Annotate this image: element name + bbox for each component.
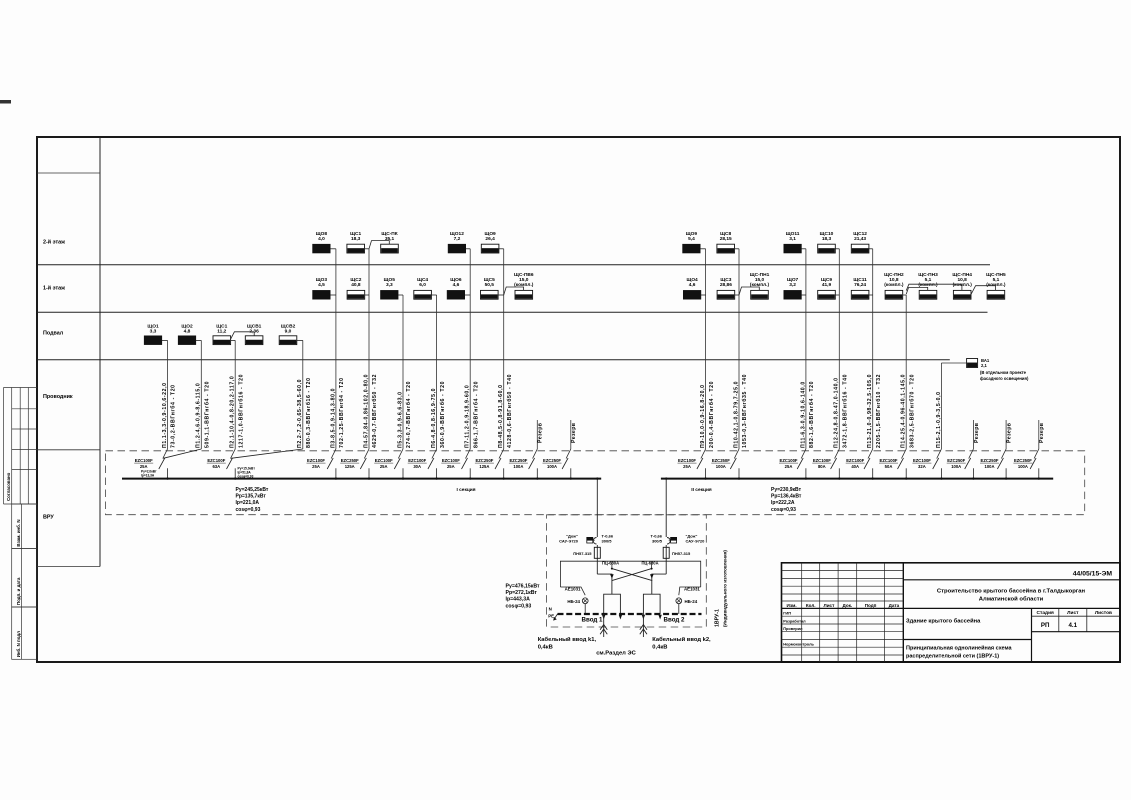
- svg-text:EZC100F: EZC100F: [442, 458, 460, 463]
- svg-text:N: N: [549, 607, 552, 612]
- svg-text:0,4кВ: 0,4кВ: [652, 644, 667, 650]
- svg-text:100А: 100А: [513, 464, 523, 469]
- svg-text:Iр=221,0А: Iр=221,0А: [236, 500, 260, 506]
- svg-text:0,4кВ: 0,4кВ: [538, 644, 553, 650]
- svg-text:EZC250F: EZC250F: [475, 458, 493, 463]
- svg-text:(Индивидуального изготовления): (Индивидуального изготовления): [723, 550, 728, 627]
- svg-text:4,0: 4,0: [318, 236, 325, 242]
- svg-text:Кол.: Кол.: [806, 603, 816, 608]
- svg-text:Резерв: Резерв: [1039, 423, 1045, 443]
- svg-text:ПЦ-630А: ПЦ-630А: [602, 561, 619, 566]
- svg-text:Ввод 1: Ввод 1: [582, 617, 604, 624]
- svg-text:П8-48,5-0,8-91,8-60,0: П8-48,5-0,8-91,8-60,0: [498, 384, 504, 448]
- svg-text:2,1: 2,1: [981, 363, 987, 368]
- svg-text:АЕ1031: АЕ1031: [684, 587, 700, 592]
- svg-text:cosφ=0,93: cosφ=0,93: [238, 475, 254, 479]
- svg-text:Резерв: Резерв: [974, 423, 980, 443]
- svg-text:САУ-Э720: САУ-Э720: [559, 539, 579, 544]
- svg-text:Кабельный ввод k1,: Кабельный ввод k1,: [538, 636, 597, 643]
- svg-text:Изм.: Изм.: [787, 603, 797, 608]
- svg-text:П15-2,1-0,9-3,5-0,0: П15-2,1-0,9-3,5-0,0: [936, 391, 942, 448]
- svg-text:100А: 100А: [547, 464, 557, 469]
- svg-text:73-0,2-ВВГнгб4 - Т20: 73-0,2-ВВГнгб4 - Т20: [170, 384, 177, 448]
- svg-text:25А: 25А: [380, 464, 388, 469]
- svg-text:Рр=272,1кВт: Рр=272,1кВт: [506, 590, 538, 596]
- svg-text:4629-0,7-ВВГнгб50 - Т32: 4629-0,7-ВВГнгб50 - Т32: [371, 374, 378, 448]
- svg-text:Iр=222,2А: Iр=222,2А: [771, 500, 795, 506]
- svg-text:80А: 80А: [818, 464, 826, 469]
- svg-text:300/5: 300/5: [652, 539, 663, 544]
- svg-text:3683-2,5-ВВГнгб70 - Т20: 3683-2,5-ВВГнгб70 - Т20: [908, 374, 915, 448]
- svg-text:П14-25,4-0,96-40,1-145,0: П14-25,4-0,96-40,1-145,0: [901, 374, 907, 448]
- svg-text:4,6: 4,6: [689, 282, 696, 288]
- svg-text:АЕ1031: АЕ1031: [565, 587, 581, 592]
- svg-text:EZC100F: EZC100F: [135, 458, 153, 463]
- svg-text:25А: 25А: [447, 464, 455, 469]
- svg-text:Разработал: Разработал: [783, 618, 806, 623]
- svg-text:П10-42,1-0,8-79,7-25,0: П10-42,1-0,8-79,7-25,0: [733, 381, 739, 448]
- svg-text:(В отдельном проекте: (В отдельном проекте: [980, 370, 1027, 375]
- svg-text:РП: РП: [1041, 622, 1050, 629]
- svg-text:PE: PE: [548, 614, 554, 619]
- svg-text:EZC100F: EZC100F: [913, 458, 931, 463]
- svg-text:Pp=135,7кВт: Pp=135,7кВт: [236, 494, 267, 500]
- svg-text:EZC250F: EZC250F: [947, 458, 965, 463]
- svg-text:300/5: 300/5: [602, 539, 613, 544]
- svg-text:1217-1,0-ВВГнгб16 - Т20: 1217-1,0-ВВГнгб16 - Т20: [237, 374, 244, 448]
- svg-text:Ввод 2: Ввод 2: [664, 617, 686, 624]
- svg-text:4128-0,6-ВВГнгб50 - Т40: 4128-0,6-ВВГнгб50 - Т40: [506, 374, 513, 448]
- svg-text:125А: 125А: [345, 464, 355, 469]
- svg-text:Подвал: Подвал: [43, 331, 64, 337]
- svg-text:Дата: Дата: [889, 603, 900, 608]
- svg-text:50А: 50А: [885, 464, 893, 469]
- svg-text:ПН57-315: ПН57-315: [573, 551, 592, 556]
- svg-text:4,6: 4,6: [453, 282, 460, 288]
- svg-text:Взам. инб. N: Взам. инб. N: [16, 519, 21, 546]
- svg-text:П6-4,8-0,8-16,9-75,0: П6-4,8-0,8-16,9-75,0: [431, 388, 437, 448]
- svg-text:5,4: 5,4: [688, 236, 695, 242]
- svg-text:НБ-24: НБ-24: [685, 599, 698, 604]
- svg-text:П1.1-3,3-0,9-10,6-22,0: П1.1-3,3-0,9-10,6-22,0: [162, 382, 168, 448]
- svg-text:7,2: 7,2: [454, 236, 461, 242]
- svg-text:Нормоконтроль: Нормоконтроль: [783, 642, 814, 647]
- svg-text:2205-1,5-ВВГнгб10 - Т32: 2205-1,5-ВВГнгб10 - Т32: [875, 374, 882, 448]
- svg-text:(компл.): (компл.): [986, 282, 1006, 288]
- svg-text:EZC250F: EZC250F: [509, 458, 527, 463]
- svg-text:4,5: 4,5: [318, 282, 325, 288]
- svg-text:125А: 125А: [479, 464, 489, 469]
- svg-text:П12-24,8-0,8-47,0-140,0: П12-24,8-0,8-47,0-140,0: [834, 377, 840, 448]
- svg-text:П7-11,2-0,9-18,9-60,0: П7-11,2-0,9-18,9-60,0: [465, 385, 471, 448]
- svg-text:28,86: 28,86: [720, 282, 732, 288]
- svg-text:702-1,25-ВВГнгб4 - Т20: 702-1,25-ВВГнгб4 - Т20: [338, 377, 345, 448]
- svg-text:Резерв: Резерв: [538, 423, 544, 443]
- svg-text:3,3: 3,3: [386, 282, 393, 288]
- svg-text:(компл.): (компл.): [884, 282, 904, 288]
- svg-text:П13-21,0-0,98-32,5-105,0: П13-21,0-0,98-32,5-105,0: [867, 374, 873, 448]
- svg-text:EZC100F: EZC100F: [408, 458, 426, 463]
- svg-text:I секция: I секция: [456, 487, 475, 493]
- svg-text:САУ-Э720: САУ-Э720: [686, 539, 706, 544]
- svg-text:Здание крытого бассейна: Здание крытого бассейна: [906, 618, 981, 625]
- svg-text:3,2: 3,2: [789, 282, 796, 288]
- svg-text:Проверил: Проверил: [783, 626, 803, 631]
- svg-text:509-1,1-ВВГнгб4 - Т20: 509-1,1-ВВГнгб4 - Т20: [204, 381, 211, 448]
- svg-text:распределительной сети (1ВРУ-1: распределительной сети (1ВРУ-1): [906, 653, 999, 660]
- svg-text:100А: 100А: [951, 464, 961, 469]
- svg-text:76,24: 76,24: [854, 282, 866, 288]
- svg-text:EZC100F: EZC100F: [846, 458, 864, 463]
- svg-text:1053-0,3-ВВГнгб35 - Т40: 1053-0,3-ВВГнгб35 - Т40: [741, 374, 748, 448]
- svg-text:Py=230,9кВт: Py=230,9кВт: [771, 487, 802, 493]
- svg-text:28,15: 28,15: [720, 236, 732, 242]
- svg-text:6,0: 6,0: [419, 282, 426, 288]
- svg-text:Док.: Док.: [843, 603, 853, 608]
- svg-text:П11-6,3-0,9-10,6-140,0: П11-6,3-0,9-10,6-140,0: [800, 381, 806, 448]
- svg-text:II секция: II секция: [691, 487, 712, 493]
- svg-text:1-й этаж: 1-й этаж: [43, 285, 65, 292]
- svg-text:40,8: 40,8: [351, 282, 361, 288]
- svg-text:200-0,4-ВВГнгб4 - Т20: 200-0,4-ВВГнгб4 - Т20: [708, 381, 715, 448]
- svg-text:Согласовано: Согласовано: [6, 472, 11, 501]
- svg-text:40А: 40А: [851, 464, 859, 469]
- svg-text:П1.2-4,6-0,9-8,6-115,0: П1.2-4,6-0,9-8,6-115,0: [196, 383, 202, 448]
- svg-text:50,5: 50,5: [485, 282, 495, 288]
- svg-text:Лист: Лист: [1067, 610, 1079, 616]
- svg-text:Ру=476,15кВт: Ру=476,15кВт: [506, 584, 541, 590]
- svg-text:2-й этаж: 2-й этаж: [43, 239, 65, 246]
- svg-text:Py=245,25кВт: Py=245,25кВт: [236, 487, 269, 493]
- svg-text:3,1: 3,1: [789, 236, 796, 242]
- svg-text:9,0: 9,0: [285, 328, 292, 334]
- svg-text:EZC250F: EZC250F: [712, 458, 730, 463]
- svg-text:EZC250F: EZC250F: [341, 458, 359, 463]
- svg-text:EZC250F: EZC250F: [981, 458, 999, 463]
- svg-text:П5-3,3-0,9-6,6-83,0: П5-3,3-0,9-6,6-83,0: [397, 391, 403, 448]
- svg-text:4,8: 4,8: [184, 328, 191, 334]
- svg-text:EZC250F: EZC250F: [543, 458, 561, 463]
- svg-text:фасадного освещения): фасадного освещения): [980, 376, 1029, 381]
- svg-text:18,3: 18,3: [351, 236, 361, 242]
- svg-text:4.1: 4.1: [1068, 622, 1077, 629]
- svg-text:Резерв: Резерв: [571, 423, 577, 443]
- svg-text:Подп. и дата: Подп. и дата: [16, 577, 21, 605]
- svg-text:П9-10,0-0,9-16,8-20,0: П9-10,0-0,9-16,8-20,0: [700, 384, 706, 448]
- svg-text:Лист: Лист: [823, 603, 835, 608]
- svg-text:32А: 32А: [918, 464, 926, 469]
- svg-text:Инб. N подл: Инб. N подл: [16, 631, 21, 657]
- svg-text:cosφ=0,93: cosφ=0,93: [236, 507, 261, 513]
- svg-text:866-1,7-ВВГнгб4 - Т20: 866-1,7-ВВГнгб4 - Т20: [472, 381, 479, 448]
- svg-text:Pp=136,4кВт: Pp=136,4кВт: [771, 494, 802, 500]
- svg-text:EZC100F: EZC100F: [780, 458, 798, 463]
- svg-text:П3-8,5-0,9-14,3-80,0: П3-8,5-0,9-14,3-80,0: [330, 388, 336, 448]
- svg-text:Принципиальная однолинейная сх: Принципиальная однолинейная схема: [906, 645, 1013, 652]
- svg-text:cosφ=0,93: cosφ=0,93: [506, 603, 532, 609]
- svg-text:3472-1,8-ВВГнгб16 - Т40: 3472-1,8-ВВГнгб16 - Т40: [842, 374, 849, 448]
- svg-text:100А: 100А: [984, 464, 994, 469]
- svg-text:(компл.): (компл.): [953, 282, 973, 288]
- svg-text:см.Раздел ЭС: см.Раздел ЭС: [596, 651, 636, 657]
- svg-text:EZC100F: EZC100F: [678, 458, 696, 463]
- svg-text:ПН57-315: ПН57-315: [672, 551, 691, 556]
- svg-text:30А: 30А: [413, 464, 421, 469]
- svg-text:Резерв: Резерв: [1007, 423, 1013, 443]
- svg-text:11,2: 11,2: [217, 328, 226, 334]
- svg-text:EZC100F: EZC100F: [880, 458, 898, 463]
- svg-text:П2.1-10,4-0,8-20,2-117,0: П2.1-10,4-0,8-20,2-117,0: [230, 376, 236, 448]
- svg-text:100А: 100А: [1018, 464, 1028, 469]
- svg-text:Iр=443,3А: Iр=443,3А: [506, 597, 531, 603]
- svg-text:EZC250F: EZC250F: [1014, 458, 1032, 463]
- svg-text:44/05/15-ЭМ: 44/05/15-ЭМ: [1073, 571, 1113, 578]
- svg-text:Алматинской области: Алматинской области: [979, 596, 1044, 603]
- svg-text:Подп: Подп: [865, 603, 877, 608]
- svg-text:Кабельный ввод k2,: Кабельный ввод k2,: [652, 636, 711, 643]
- svg-text:Стадия: Стадия: [1037, 610, 1054, 616]
- svg-text:EZC100F: EZC100F: [307, 458, 325, 463]
- svg-text:25А: 25А: [312, 464, 320, 469]
- svg-text:cosφ=0,93: cosφ=0,93: [771, 507, 796, 513]
- svg-text:ВРУ: ВРУ: [43, 515, 54, 521]
- svg-text:41,9: 41,9: [822, 282, 832, 288]
- svg-text:25А: 25А: [683, 464, 691, 469]
- svg-text:ПЦ-630А: ПЦ-630А: [641, 561, 658, 566]
- svg-text:Строительство крытого бассейна: Строительство крытого бассейна в г.Талды…: [937, 588, 1086, 595]
- svg-text:25А: 25А: [785, 464, 793, 469]
- svg-text:НБ-24: НБ-24: [567, 599, 580, 604]
- svg-text:274-0,7-ВВГнгб4 - Т20: 274-0,7-ВВГнгб4 - Т20: [405, 381, 412, 448]
- svg-text:EZC100F: EZC100F: [813, 458, 831, 463]
- svg-text:Iр=13,3А: Iр=13,3А: [141, 474, 155, 478]
- svg-text:100А: 100А: [716, 464, 726, 469]
- svg-text:EZC100F: EZC100F: [375, 458, 393, 463]
- svg-text:П2.2-7,2-0,65-38,5-60,0: П2.2-7,2-0,65-38,5-60,0: [297, 379, 303, 448]
- svg-text:Проводник: Проводник: [43, 394, 73, 400]
- svg-text:880-0,3-ВВГнгб16 - Т20: 880-0,3-ВВГнгб16 - Т20: [305, 377, 312, 448]
- svg-text:EZC100F: EZC100F: [207, 458, 225, 463]
- svg-text:П4-57,84-0,86-102,0-80,0: П4-57,84-0,86-102,0-80,0: [363, 374, 369, 448]
- svg-text:21,43: 21,43: [854, 236, 866, 242]
- svg-text:Листов: Листов: [1095, 610, 1112, 616]
- svg-text:3,3: 3,3: [150, 328, 157, 334]
- svg-text:25А: 25А: [140, 464, 148, 469]
- svg-text:18,3: 18,3: [822, 236, 832, 242]
- svg-text:882-1,6-ВВГнгб4 - Т20: 882-1,6-ВВГнгб4 - Т20: [808, 381, 815, 448]
- svg-text:ГИП: ГИП: [783, 611, 791, 616]
- svg-text:360-0,9-ВВГнгб6 - Т20: 360-0,9-ВВГнгб6 - Т20: [439, 381, 446, 448]
- svg-text:63А: 63А: [212, 464, 220, 469]
- svg-text:1ВРУ-1: 1ВРУ-1: [715, 609, 721, 627]
- svg-text:26,4: 26,4: [485, 236, 495, 242]
